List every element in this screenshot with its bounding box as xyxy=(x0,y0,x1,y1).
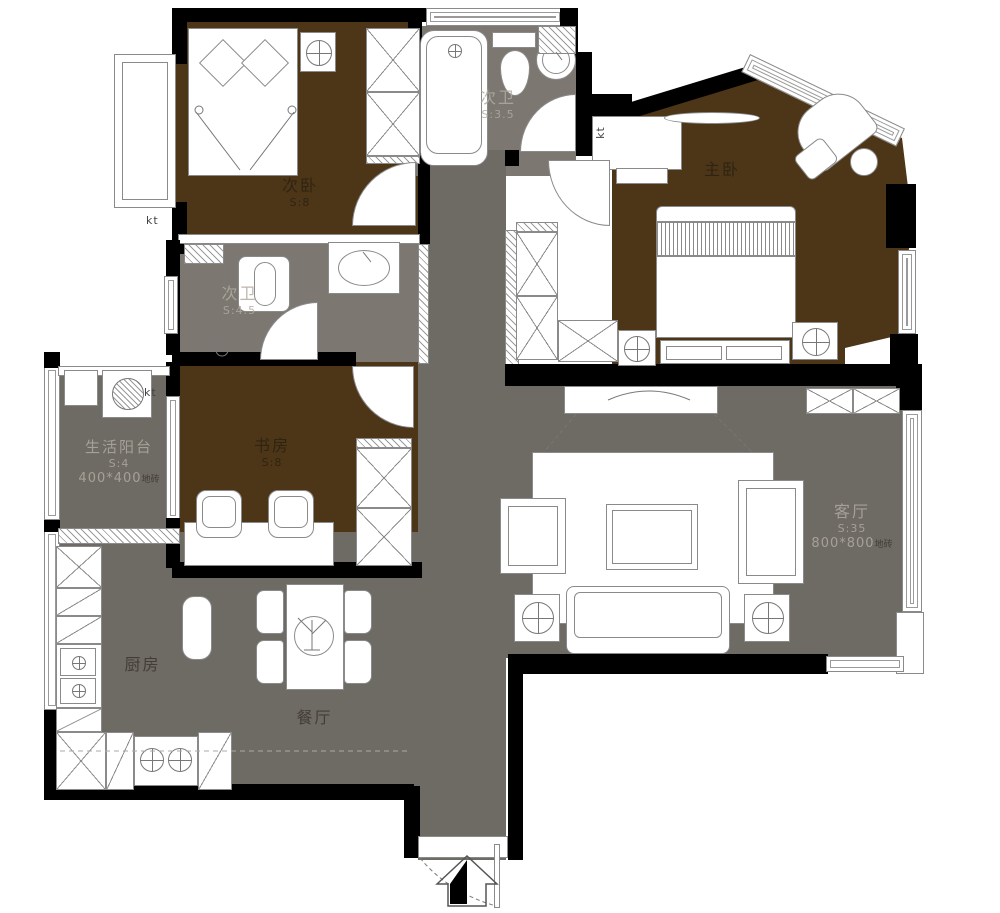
bed-headboard xyxy=(656,206,796,222)
chair-inner xyxy=(274,496,308,528)
shoe-cabinet xyxy=(806,388,853,414)
wall xyxy=(508,654,828,674)
chair xyxy=(256,640,284,684)
shoe-cabinet xyxy=(853,388,900,414)
toilet-tank xyxy=(492,32,536,48)
bed xyxy=(656,256,796,338)
side-table-round xyxy=(850,148,878,176)
drain-icon xyxy=(72,656,86,670)
low-wall-hatched xyxy=(58,528,180,544)
wardrobe xyxy=(516,296,558,360)
wardrobe-side xyxy=(356,438,412,448)
bed-bench-cushion xyxy=(666,346,722,360)
bay-window-inner xyxy=(122,62,168,200)
floor-plan: 次卧 S:8 次卫 S:3.5 主卧 次卫 S:4.5 生活阳台 S:4 400… xyxy=(0,0,1000,913)
chair xyxy=(256,590,284,634)
centerpiece xyxy=(294,616,334,656)
wall-shelf xyxy=(664,112,760,124)
bed xyxy=(188,28,298,176)
counter xyxy=(106,732,134,790)
wardrobe xyxy=(356,508,412,566)
window-living-bottom xyxy=(826,656,904,672)
fridge xyxy=(182,596,212,660)
basin-oval xyxy=(338,250,390,286)
cabinet xyxy=(56,546,102,588)
burner-icon xyxy=(168,748,192,772)
counter xyxy=(56,616,102,644)
entry-door-swing xyxy=(420,858,496,906)
wardrobe xyxy=(366,92,420,156)
wall xyxy=(886,184,916,248)
coffee-table-inner xyxy=(612,510,692,564)
burner-icon xyxy=(140,748,164,772)
shelf xyxy=(184,244,224,264)
lamp-icon xyxy=(752,602,784,634)
window-living-right xyxy=(902,410,922,612)
corner-shelf xyxy=(538,26,576,54)
lamp-icon xyxy=(522,602,554,634)
kt-annotation: kt xyxy=(594,126,607,139)
wall xyxy=(505,150,519,166)
laundry-sink xyxy=(64,370,98,406)
drain-icon xyxy=(448,44,462,58)
armchair-seat xyxy=(746,488,796,576)
wardrobe-side xyxy=(516,222,558,232)
entry-door-panel xyxy=(494,844,500,908)
wall xyxy=(172,8,434,22)
counter-corner xyxy=(56,732,106,790)
window-top-bath xyxy=(426,8,564,26)
bed-pillows xyxy=(656,222,796,256)
window-bath-left xyxy=(164,276,178,334)
window-balcony-left xyxy=(44,366,60,520)
entry-arrow-icon xyxy=(437,856,497,906)
wall xyxy=(505,364,905,386)
chair xyxy=(344,640,372,684)
armchair-seat xyxy=(508,506,558,566)
kt-closet-step xyxy=(616,168,668,184)
wall xyxy=(576,52,592,156)
washer-drum-icon xyxy=(112,378,144,410)
wardrobe xyxy=(356,448,412,508)
tv-cabinet xyxy=(564,386,718,414)
lamp-icon xyxy=(802,328,830,356)
bed-bench-cushion xyxy=(726,346,782,360)
wardrobe xyxy=(366,28,420,92)
kt-annotation: kt xyxy=(146,214,159,227)
sofa-seat xyxy=(574,592,722,638)
door-swing xyxy=(548,160,610,226)
chair xyxy=(344,590,372,634)
wardrobe xyxy=(558,320,618,362)
counter xyxy=(56,588,102,616)
window-master-right xyxy=(898,250,916,334)
counter xyxy=(56,708,102,732)
chair-inner xyxy=(202,496,236,528)
counter xyxy=(198,732,232,790)
squat-toilet-pan xyxy=(254,262,276,306)
wall xyxy=(508,674,523,860)
kt-annotation: kt xyxy=(144,386,157,399)
drain-icon xyxy=(72,684,86,698)
window-study-left xyxy=(166,396,180,520)
wall-hatched xyxy=(418,244,429,364)
lamp-icon xyxy=(624,336,650,362)
wardrobe xyxy=(516,232,558,296)
lamp-icon xyxy=(306,40,332,66)
